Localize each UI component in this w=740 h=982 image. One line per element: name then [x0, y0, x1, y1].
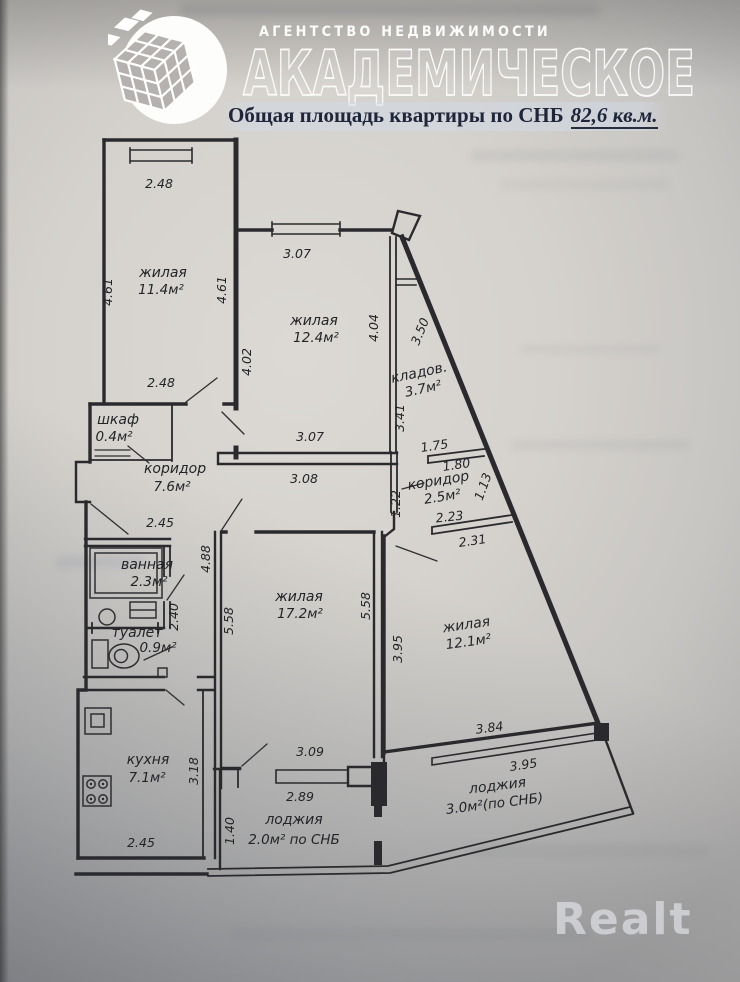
dim-label: 5.58 [358, 592, 373, 620]
room-area-label: 12.4м² [293, 330, 339, 346]
room-name-label: жилая [274, 589, 323, 605]
room-name-label: шкаф [97, 412, 139, 428]
room-area-label: 7.1м² [128, 770, 166, 786]
room-name-label: жилая [138, 265, 187, 281]
dim-label: 3.07 [283, 246, 311, 261]
duct-box [158, 668, 167, 677]
room-area-label: 0.4м² [95, 429, 133, 445]
room-area-label: 11.4м² [138, 282, 184, 298]
room-area-label: 0.9м² [139, 640, 177, 656]
dim-label: 3.84 [475, 718, 504, 736]
room-name-label: туалет [112, 625, 164, 641]
room-name-label: лоджия [264, 812, 322, 828]
dim-label: 2.48 [147, 375, 175, 390]
dim-label: 2.23 [435, 508, 464, 526]
dim-label: 3.50 [408, 316, 432, 347]
dim-label: 2.40 [166, 603, 181, 631]
dim-label: 3.95 [509, 755, 539, 774]
dim-label: 3.08 [290, 471, 318, 486]
dim-label: 1.22 [388, 490, 403, 518]
room-name-label: ванная [121, 557, 173, 573]
washbasin [99, 609, 115, 625]
dim-label: 4.88 [198, 545, 213, 573]
dim-label: 2.45 [127, 835, 155, 850]
room-area-label: 7.6м² [153, 479, 191, 495]
dim-label: 2.48 [145, 176, 173, 191]
dim-label: 3.07 [296, 429, 324, 444]
dim-label: 5.58 [221, 607, 236, 635]
dim-label: 4.61 [100, 278, 115, 306]
dim-label: 3.18 [186, 757, 201, 785]
toilet-tank [92, 640, 108, 668]
kitchen-cabinet [85, 708, 111, 734]
dim-label: 4.02 [239, 348, 254, 376]
floor-plan: жилая 11.4м² жилая 12.4м² кладов. 3.7м² … [0, 0, 740, 982]
bathtub [90, 548, 162, 598]
dim-label: 2.45 [146, 515, 174, 530]
dim-label: 3.41 [392, 404, 407, 432]
room-labels: жилая 11.4м² жилая 12.4м² кладов. 3.7м² … [95, 265, 544, 848]
dim-label: 2.89 [286, 789, 314, 804]
dim-label: 1.75 [420, 436, 450, 455]
dim-label: 1.40 [222, 817, 237, 845]
room-name-label: жилая [289, 313, 338, 329]
room-area-label: 17.2м² [277, 606, 323, 622]
dim-label: 3.95 [390, 635, 405, 663]
dim-label: 3.09 [296, 744, 324, 759]
dim-label: 1.13 [471, 471, 495, 502]
room-area-label: 2.0м² по СНБ [248, 832, 340, 848]
room-area-label: 2.3м² [130, 574, 168, 590]
dim-label: 4.61 [214, 276, 229, 304]
toilet-bowl [109, 644, 139, 668]
room-name-label: кухня [127, 752, 170, 768]
realt-watermark: Realt [553, 894, 693, 945]
room-name-label: коридор [144, 461, 206, 477]
dim-label: 4.04 [366, 314, 381, 342]
scanned-floor-plan-photo: АГЕНТСТВО НЕДВИЖИМОСТИ АКАДЕМИЧЕСКОЕ Общ… [0, 0, 740, 982]
dim-label: 2.31 [458, 531, 488, 550]
